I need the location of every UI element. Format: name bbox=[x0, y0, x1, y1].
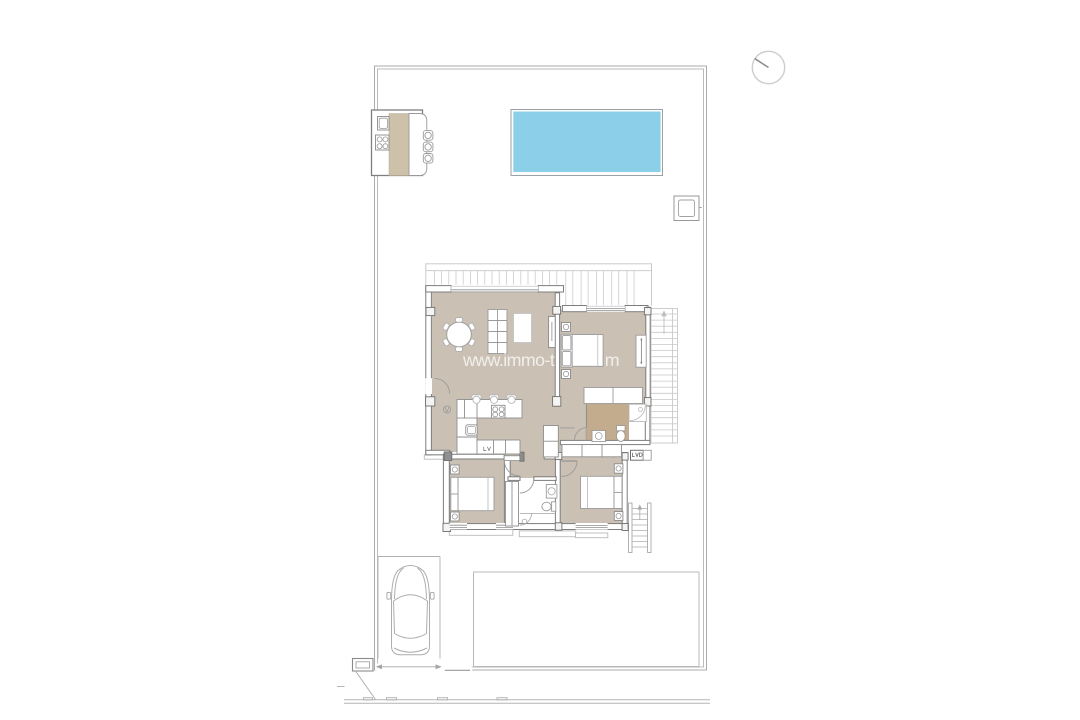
svg-text:m: m bbox=[605, 350, 622, 370]
svg-text:www.immo-t: www.immo-t bbox=[462, 350, 557, 370]
